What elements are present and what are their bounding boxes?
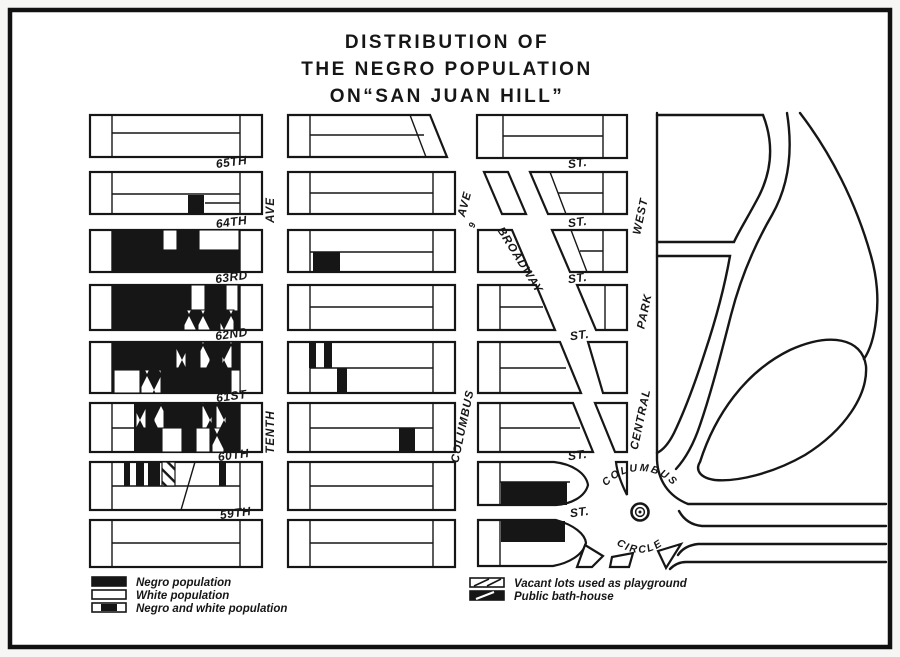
tenth-label: TENTH xyxy=(265,410,277,453)
negro-lot xyxy=(188,195,204,214)
white-lot xyxy=(226,285,238,311)
white-lot xyxy=(114,370,140,393)
negro-lot xyxy=(337,368,347,393)
negro-lot xyxy=(501,482,567,505)
title-line-1: DISTRIBUTION OF xyxy=(345,32,549,53)
negro-lot xyxy=(324,342,332,368)
san-juan-hill-map: DISTRIBUTION OF THE NEGRO POPULATION ON“… xyxy=(0,0,900,657)
legend-label-bathhouse: Public bath-house xyxy=(514,591,614,603)
negro-lot xyxy=(219,462,226,486)
mixed-lot xyxy=(141,370,161,393)
legend-label-playground: Vacant lots used as playground xyxy=(514,578,688,590)
negro-lot xyxy=(309,342,316,368)
negro-lot xyxy=(124,462,130,486)
mixed-lot xyxy=(198,310,210,330)
block-outline xyxy=(90,115,262,157)
mixed-lot xyxy=(200,342,210,368)
blocks-west-column xyxy=(90,115,262,567)
st-label: ST. xyxy=(569,504,590,521)
tenth-ave-label: AVE xyxy=(265,197,277,224)
mixed-lot xyxy=(184,310,196,330)
circle-monument-dot xyxy=(639,511,642,514)
mixed-lot xyxy=(222,342,232,368)
white-lot xyxy=(191,285,205,310)
legend-swatch-mixed-fill xyxy=(101,604,117,611)
st-label: ST. xyxy=(567,155,588,172)
mixed-lot xyxy=(202,403,212,428)
white-lot xyxy=(162,428,182,452)
st-label: ST. xyxy=(567,447,588,464)
negro-lot xyxy=(501,521,565,542)
white-lot xyxy=(196,428,210,452)
legend-label-white: White population xyxy=(136,590,229,602)
negro-lot xyxy=(136,462,144,486)
white-lot xyxy=(199,230,239,250)
st-label: ST. xyxy=(567,214,588,231)
mixed-lot xyxy=(212,428,224,452)
block-outline xyxy=(90,172,262,214)
negro-lot xyxy=(148,462,160,486)
mixed-lot xyxy=(216,403,226,428)
legend-swatch-negro xyxy=(92,577,126,586)
mixed-lot xyxy=(136,403,146,428)
legend-swatch-white xyxy=(92,590,126,599)
mixed-lot xyxy=(176,342,186,368)
title-line-2: THE NEGRO POPULATION xyxy=(301,59,592,80)
title-line-3: ON“SAN JUAN HILL” xyxy=(330,86,565,107)
st-label: ST. xyxy=(567,270,588,287)
legend-label-mixed: Negro and white population xyxy=(136,603,287,615)
negro-lot xyxy=(313,252,340,272)
mixed-lot xyxy=(154,403,164,428)
playground-lot xyxy=(162,462,175,486)
st-label: ST. xyxy=(569,327,590,344)
blocks-middle-column xyxy=(288,115,455,567)
legend-label-negro: Negro population xyxy=(136,577,231,589)
negro-lot xyxy=(399,428,415,452)
white-lot xyxy=(163,230,177,250)
scanned-map-page: DISTRIBUTION OF THE NEGRO POPULATION ON“… xyxy=(0,0,900,657)
title-block: DISTRIBUTION OF THE NEGRO POPULATION ON“… xyxy=(301,32,592,107)
